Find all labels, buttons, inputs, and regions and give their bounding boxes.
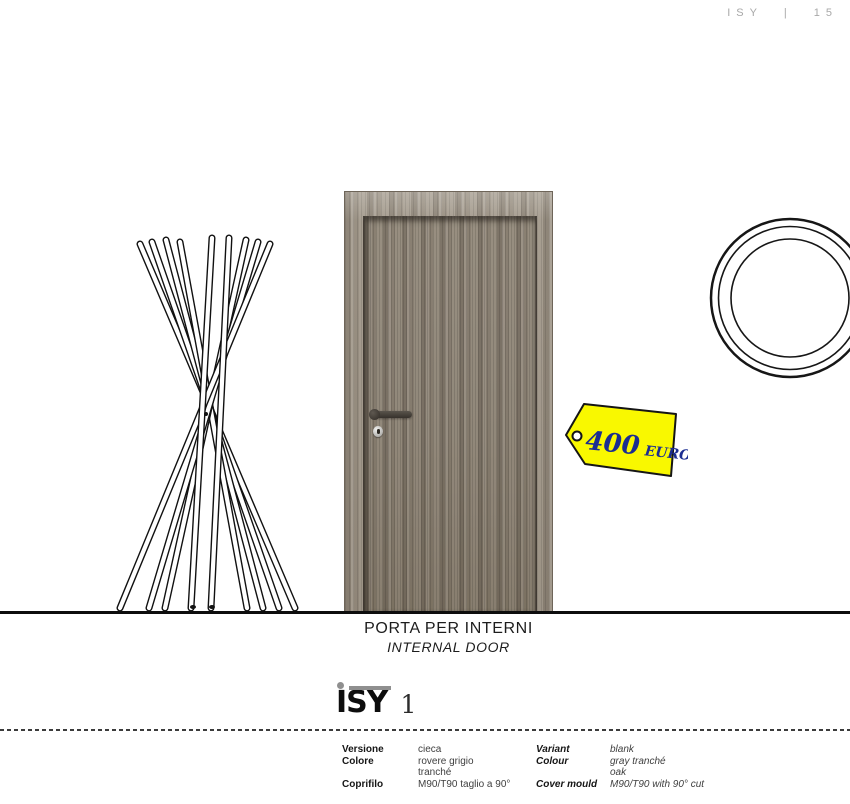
brand-dot-icon — [337, 682, 344, 689]
coat-rack-drawing — [105, 228, 315, 614]
coat-rack-rods — [120, 238, 295, 608]
price-tag-hole-icon — [573, 432, 582, 441]
mirror-drawing — [700, 208, 850, 393]
spec-label-coprifilo: Coprifilo — [342, 779, 418, 791]
brand-wordmark: ISY — [336, 688, 388, 718]
coat-rack-pivot-dot — [204, 412, 208, 416]
spec-value-cover-mould: M90/T90 with 90° cut — [610, 779, 760, 791]
dotted-divider — [0, 729, 850, 731]
brand-bar-icon — [349, 686, 391, 690]
keyhole-escutcheon-icon — [373, 426, 383, 437]
caption-italian: PORTA PER INTERNI — [324, 620, 573, 638]
spec-value-colore: rovere grigio tranché — [418, 756, 536, 779]
spec-label-variant: Variant — [536, 744, 610, 756]
model-number: 1 — [401, 691, 417, 718]
catalog-page: { "header": { "page_marker": "ISY | 15" … — [0, 0, 850, 804]
coat-rack-foot-dot — [209, 605, 215, 609]
spec-value-versione: cieca — [418, 744, 536, 756]
brand-text: ISY — [336, 685, 388, 720]
floor-line — [0, 611, 850, 614]
caption-english: INTERNAL DOOR — [324, 639, 573, 655]
spec-value-coprifilo: M90/T90 taglio a 90° — [418, 779, 536, 791]
page-marker: ISY | 15 — [727, 7, 838, 19]
spec-label-colour: Colour — [536, 756, 610, 779]
spec-value-variant: blank — [610, 744, 760, 756]
door-caption: PORTA PER INTERNI INTERNAL DOOR — [324, 620, 573, 655]
coat-rack-foot-dot — [190, 605, 196, 609]
spec-label-colore: Colore — [342, 756, 418, 779]
spec-value-colour: gray tranché oak — [610, 756, 760, 779]
spec-row-versione: Versione cieca Variant blank — [342, 744, 760, 756]
price-tag: 400 EURO — [558, 392, 688, 492]
door-handle-icon — [375, 411, 412, 418]
spec-row-coprifilo: Coprifilo M90/T90 taglio a 90° Cover mou… — [342, 779, 760, 791]
product-title: ISY 1 — [336, 684, 416, 718]
door-image — [344, 191, 553, 612]
spec-label-cover-mould: Cover mould — [536, 779, 610, 791]
door-handle-hub — [369, 409, 380, 420]
spec-table: Versione cieca Variant blank Colore rove… — [342, 744, 760, 790]
spec-row-colore: Colore rovere grigio tranché Colour gray… — [342, 756, 760, 779]
spec-label-versione: Versione — [342, 744, 418, 756]
